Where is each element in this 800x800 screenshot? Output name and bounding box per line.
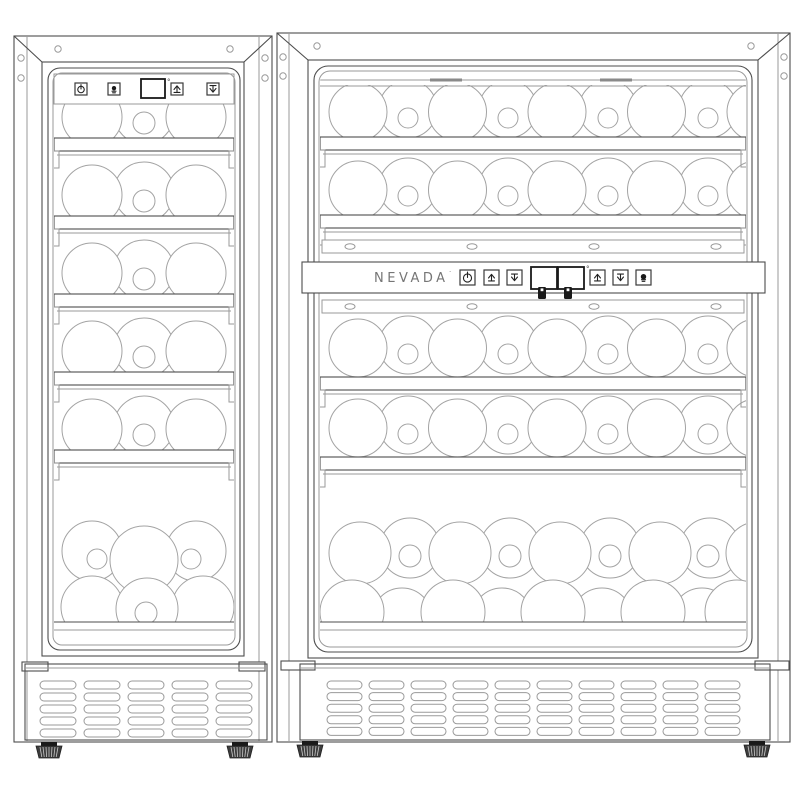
temperature-display [141,79,165,98]
vent-slot [663,704,698,712]
bottle-neck [499,545,521,567]
light-icon [641,274,646,281]
wine-bottle [727,161,785,219]
power-button [460,270,475,285]
lower-temp-down-button [613,270,628,285]
shelf [319,377,747,407]
vent-slot [621,693,656,701]
vent-slot [84,681,120,689]
screw-hole-icon [781,54,787,60]
door-bottom-rail [320,622,746,646]
vent-slot [453,681,488,689]
screw-icon [345,244,355,250]
vent-slot [705,693,740,701]
vent-slot [411,681,446,689]
vent-slot [579,681,614,689]
shelf [319,137,747,167]
bottle-neck [498,108,518,128]
wine-bottle [329,83,387,141]
vent-slot [216,681,252,689]
screw-hole-icon [18,75,24,81]
screw-icon [589,244,599,250]
shelf-bracket [53,151,59,168]
bottle-neck [697,545,719,567]
page: NEVADA · ° ° [0,0,800,800]
wine-bottle [529,522,591,584]
bottle-neck [398,344,418,364]
bottle-row [329,80,785,141]
bottle-neck [498,344,518,364]
wine-bottle [628,319,686,377]
bottle-row [329,396,785,457]
shelf-bracket [319,150,325,167]
bottle-row [329,316,785,377]
wine-bottle [628,161,686,219]
screw-hole-icon [262,55,268,61]
control-panel [54,74,234,104]
vent-slot [40,717,76,725]
vent-slot [327,681,362,689]
screw-icon [345,304,355,310]
bottle-neck [398,424,418,444]
adjustable-foot [297,741,323,757]
wine-bottle [429,319,487,377]
lower-zone-bottle-icon [564,287,572,299]
bottle-neck [133,190,155,212]
adjustable-foot [227,742,253,758]
upper-temp-down-button [507,270,522,285]
shelf-bracket [53,229,59,246]
wine-bottle [329,161,387,219]
upper-zone-bottle-icon [538,287,546,299]
vent-slot [621,681,656,689]
vent-slot [411,693,446,701]
hinge-bracket [22,662,48,671]
vent-slot [128,717,164,725]
upper-zone-display [531,267,557,289]
wine-bottle [429,83,487,141]
vent-slot [579,716,614,724]
cavity-content [53,84,235,646]
hinge-bracket [281,661,315,670]
vent-slot [327,727,362,735]
vent-slot [579,704,614,712]
vent-slot [84,717,120,725]
vent-slot [369,727,404,735]
wine-bottle [528,83,586,141]
bottle-neck [598,186,618,206]
vent-slot [579,727,614,735]
shelf-bracket [229,307,235,324]
vent-slot [621,727,656,735]
vent-slot [537,693,572,701]
bottle-neck [133,112,155,134]
shelf [53,450,235,480]
vent-slot [216,705,252,713]
vent-slot [327,704,362,712]
vent-slot [705,727,740,735]
shelf-bracket [229,385,235,402]
right-display-degree-mark: ° [586,265,590,273]
bottle-icon [564,287,572,299]
shelf-bracket [53,385,59,402]
vent-slot [84,705,120,713]
hinge-strip [322,240,744,253]
vent-slot [453,704,488,712]
wine-bottle [727,319,785,377]
vent-slot [128,729,164,737]
vent-slot [411,727,446,735]
light-button [636,270,651,285]
wine-bottle [329,522,391,584]
cavity-content [319,72,788,648]
vent-slot [705,681,740,689]
vent-slot [663,716,698,724]
vent-grille [25,664,267,740]
screw-hole-icon [314,43,320,49]
vent-slot [40,729,76,737]
bottle-neck [498,424,518,444]
vent-slot [172,681,208,689]
vent-slot [537,716,572,724]
bottle-row [329,518,788,584]
bottle-icon [538,287,546,299]
upper-temp-up-button [484,270,499,285]
screw-icon [467,244,477,250]
wine-bottle [528,399,586,457]
vent-slot [172,705,208,713]
brand-trademark-mark: · [449,268,451,276]
wine-bottle [628,399,686,457]
screw-hole-icon [262,75,268,81]
vent-slot [621,704,656,712]
shelf-bracket [319,390,325,407]
left-unit [14,36,272,758]
technical-drawing: NEVADA · ° ° [0,0,800,800]
vent-slot [84,693,120,701]
hinge-bracket [239,662,265,671]
wine-bottle [329,399,387,457]
light-button [108,83,120,95]
vent-slot [216,693,252,701]
left-display-degree-mark: ° [167,78,171,86]
bottle-neck [133,346,155,368]
lower-zone-display [558,267,584,289]
vent-slot [40,705,76,713]
vent-slot [369,693,404,701]
shelf-bracket [319,470,325,487]
screw-hole-icon [280,73,286,79]
vent-slot [663,727,698,735]
wine-bottle [429,399,487,457]
vent-slot [537,704,572,712]
right-unit [277,33,790,757]
temp-up-button [171,83,183,95]
vent-slot [84,729,120,737]
bottle-neck [498,186,518,206]
screw-icon [711,244,721,250]
bottle-neck [133,424,155,446]
bottle-neck [598,108,618,128]
vent-slot [495,693,530,701]
vent-slot [216,729,252,737]
wine-bottle [429,161,487,219]
vent-slot [369,681,404,689]
wine-bottle [429,522,491,584]
vent-slot [663,693,698,701]
screw-hole-icon [280,54,286,60]
vent-slot [411,704,446,712]
shelf-bracket [741,470,747,487]
vent-slot [40,693,76,701]
wine-bottle [727,399,785,457]
bottle-neck [698,424,718,444]
hinge-strip [322,300,744,313]
bottle-neck [598,344,618,364]
vent-slot [128,705,164,713]
vent-slot [369,716,404,724]
wine-bottle [629,522,691,584]
bottle-row [329,158,785,219]
screw-hole-icon [781,73,787,79]
adjustable-foot [36,742,62,758]
brand-label: NEVADA [374,271,449,286]
bottle-neck [181,549,201,569]
display-bar [302,262,765,299]
vent-slot [327,693,362,701]
vent-slot [40,681,76,689]
vent-slot [128,681,164,689]
bottle-neck [133,268,155,290]
vent-slot [172,717,208,725]
bottle-neck [399,545,421,567]
vent-slot [705,704,740,712]
vent-slot [327,716,362,724]
screw-hole-icon [227,46,233,52]
vent-slot [495,727,530,735]
shelf [319,457,747,487]
vent-slot [495,681,530,689]
vent-slot [705,716,740,724]
screw-hole-icon [748,43,754,49]
vent-slot [172,693,208,701]
shelf-bracket [53,463,59,480]
screw-hole-icon [18,55,24,61]
shelf-bracket [229,463,235,480]
lower-temp-up-button [590,270,605,285]
vent-slot [216,717,252,725]
hinge-bracket [755,661,789,670]
vent-slot [621,716,656,724]
wine-bottle [528,319,586,377]
bottle-neck [698,344,718,364]
door-bottom-rail [54,622,234,646]
shelf-bracket [229,151,235,168]
bottle-neck [398,186,418,206]
vent-slot [369,704,404,712]
wine-bottle [726,522,788,584]
vent-slot [172,729,208,737]
bottle-neck [398,108,418,128]
wine-bottle [528,161,586,219]
shelf-bracket [53,307,59,324]
vent-grille [300,664,770,740]
wine-bottle [727,83,785,141]
bottle-neck [599,545,621,567]
vent-slot [537,681,572,689]
vent-slot [453,693,488,701]
vent-slot [411,716,446,724]
vent-slot [495,716,530,724]
vent-slot [453,727,488,735]
bottle-neck [698,186,718,206]
wine-bottle [628,83,686,141]
screw-icon [467,304,477,310]
power-button [75,83,87,95]
screw-hole-icon [55,46,61,52]
bottle-neck [698,108,718,128]
vent-slot [495,704,530,712]
vent-slot [453,716,488,724]
vent-slot [663,681,698,689]
shelf-bracket [229,229,235,246]
bottle-neck [87,549,107,569]
wine-bottle [329,319,387,377]
vent-slot [537,727,572,735]
screw-icon [589,304,599,310]
door-top-rail [320,72,746,86]
adjustable-foot [744,741,770,757]
bottle-neck [135,602,157,624]
screw-icon [711,304,721,310]
bottle-neck [598,424,618,444]
temp-down-button [207,83,219,95]
vent-slot [128,693,164,701]
vent-slot [579,693,614,701]
